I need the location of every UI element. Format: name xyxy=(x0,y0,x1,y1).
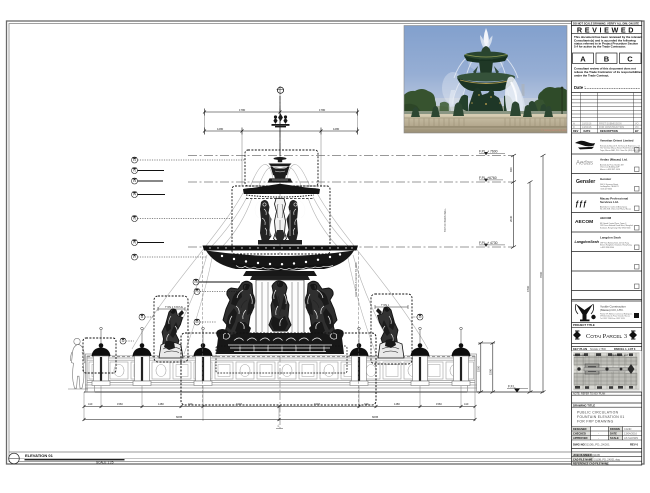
svg-text:BY: BY xyxy=(635,129,639,133)
svg-text:3110B_PD_2K001: 3110B_PD_2K001 xyxy=(585,443,610,447)
svg-text:F.F.L.: F.F.L. xyxy=(508,385,516,389)
svg-text:AECOM: AECOM xyxy=(600,216,612,220)
svg-text:5.4 for action by the Trade Co: 5.4 for action by the Trade Contractor. xyxy=(574,45,626,49)
svg-text:Kowloon, Hong Kong t 852 3922: Kowloon, Hong Kong t 852 3922 9000 xyxy=(600,226,630,229)
svg-text:Langdon Seah: Langdon Seah xyxy=(600,236,621,240)
svg-text:DRAWN: DRAWN xyxy=(610,427,620,431)
svg-text:1918: 1918 xyxy=(236,402,242,406)
svg-text:10/03/16: 10/03/16 xyxy=(582,122,592,125)
svg-text:DESCRIPTION: DESCRIPTION xyxy=(600,129,618,133)
svg-text:6095: 6095 xyxy=(176,415,183,419)
svg-text:13/04/2016: 13/04/2016 xyxy=(624,431,638,435)
svg-text:-: - xyxy=(598,432,599,435)
svg-text:KEY PLAN: KEY PLAN xyxy=(573,347,587,351)
svg-text:PUBLIC CIRCULATION: PUBLIC CIRCULATION xyxy=(577,411,619,415)
svg-text:REV 0: REV 0 xyxy=(630,443,639,447)
svg-text:FIRST SUBMISSION: FIRST SUBMISSION xyxy=(599,122,622,125)
svg-text:© www.parisinfo.com: © www.parisinfo.com xyxy=(541,128,568,132)
svg-text:F.P.L +6760: F.P.L +6760 xyxy=(479,176,497,180)
svg-text:410: 410 xyxy=(88,402,93,406)
svg-text:3110B_PD_2K001.dwg: 3110B_PD_2K001.dwg xyxy=(594,458,620,461)
svg-text:(Macau) CO, LTD.: (Macau) CO, LTD. xyxy=(600,308,624,312)
svg-text:Date :: Date : xyxy=(574,85,586,90)
svg-text:SCALE: SCALE xyxy=(610,436,619,440)
svg-text:Gensler: Gensler xyxy=(600,177,612,181)
svg-text:Aedas (Macau) Ltd.: Aedas (Macau) Ltd. xyxy=(600,158,628,162)
svg-text:B: B xyxy=(604,54,610,63)
svg-text:1280: 1280 xyxy=(333,127,340,131)
svg-text:CAD FILE NAME: CAD FILE NAME xyxy=(573,458,593,461)
svg-text:JOB NUMBER: JOB NUMBER xyxy=(573,453,592,457)
svg-text:840: 840 xyxy=(509,167,513,172)
svg-text:410: 410 xyxy=(464,402,469,406)
svg-text:1590: 1590 xyxy=(489,368,493,375)
svg-text:TYPE 1: TYPE 1 xyxy=(381,304,390,307)
svg-text:ELEVATION 01: ELEVATION 01 xyxy=(25,453,54,458)
svg-text:Gensler: Gensler xyxy=(576,179,595,185)
svg-text:APPROVED: APPROVED xyxy=(573,436,588,440)
svg-text:SITE PLAN: SITE PLAN xyxy=(573,354,585,357)
svg-text:DRAWING TITLE: DRAWING TITLE xyxy=(573,403,595,407)
svg-text:740: 740 xyxy=(188,402,193,406)
svg-text:under the Trade Contract.: under the Trade Contract. xyxy=(574,74,609,78)
svg-text:-: - xyxy=(598,437,599,440)
svg-text:1560: 1560 xyxy=(436,402,442,406)
svg-text:NOTE: REFER TO KEY PLAN: NOTE: REFER TO KEY PLAN xyxy=(573,393,606,396)
svg-text:DWG NO: DWG NO xyxy=(573,443,586,447)
svg-text:3110B: 3110B xyxy=(592,453,600,457)
svg-text:TYPE 2 STATUE: TYPE 2 STATUE xyxy=(165,306,183,309)
svg-text:VO: VO xyxy=(635,126,639,129)
svg-text:740: 740 xyxy=(364,402,369,406)
svg-text:PROJECT TITLE: PROJECT TITLE xyxy=(573,323,595,327)
svg-text:Services Ltd.: Services Ltd. xyxy=(600,200,619,204)
svg-text:Tel: 2837 2336 Fax: 2837 2676: Tel: 2837 2336 Fax: 2837 2676 xyxy=(600,318,625,320)
svg-text:Macau t +853 2871 5016: Macau t +853 2871 5016 xyxy=(600,168,620,171)
svg-text:Aedas: Aedas xyxy=(576,161,593,167)
svg-text:VO: VO xyxy=(635,122,639,125)
svg-text:ƒƒƒ: ƒƒƒ xyxy=(575,201,587,208)
svg-text:REV: REV xyxy=(573,129,579,133)
svg-text:FOR FRP DRAWING: FOR FRP DRAWING xyxy=(577,420,614,424)
svg-text:Taipa, Macau SAR, P.R. China: Taipa, Macau SAR, P.R. China Tel: (853) … xyxy=(600,149,641,152)
svg-text:No. 263, Edf. China Civil Plaz: No. 263, Edf. China Civil Plaza, Macau xyxy=(600,209,631,211)
svg-text:1780: 1780 xyxy=(239,108,246,112)
svg-text:FOR DETAILS REFER TO DWG: FOR DETAILS REFER TO DWG xyxy=(355,262,358,297)
svg-text:1780: 1780 xyxy=(319,108,326,112)
svg-text:1280: 1280 xyxy=(217,127,224,131)
svg-text:AECOM: AECOM xyxy=(575,219,593,225)
svg-text:2030: 2030 xyxy=(509,215,513,222)
svg-text:COTAI PARCEL 3: COTAI PARCEL 3 xyxy=(586,333,627,340)
svg-text:13/04/16: 13/04/16 xyxy=(582,126,592,129)
svg-text:Venetian Orient Limited: Venetian Orient Limited xyxy=(600,139,634,143)
svg-text:1480: 1480 xyxy=(394,402,400,406)
svg-text:6760: 6760 xyxy=(526,285,530,292)
svg-text:C: C xyxy=(627,54,633,63)
svg-text:t 213.327.3600: t 213.327.3600 xyxy=(600,187,612,190)
svg-text:TOP OF BASIN WALL: TOP OF BASIN WALL xyxy=(444,208,447,232)
svg-text:FOUNTAIN ELEVATION 01: FOUNTAIN ELEVATION 01 xyxy=(577,415,625,419)
svg-text:F.P.L + 7600: F.P.L + 7600 xyxy=(479,150,498,154)
svg-text:F.P.L + 4730: F.P.L + 4730 xyxy=(479,241,498,245)
svg-text:6095: 6095 xyxy=(372,415,379,419)
svg-text:LangdonSeah: LangdonSeah xyxy=(575,240,600,244)
svg-text:A: A xyxy=(580,54,586,63)
svg-text:7600: 7600 xyxy=(539,271,543,278)
svg-text:1918: 1918 xyxy=(314,402,320,406)
svg-text:REVIEWED: REVIEWED xyxy=(577,25,636,34)
svg-text:DATE: DATE xyxy=(610,431,617,435)
svg-text:PARCEL 1, LOT 3: PARCEL 1, LOT 3 xyxy=(612,354,631,357)
svg-text:PARCEL 1, LOT 3: PARCEL 1, LOT 3 xyxy=(614,347,636,351)
svg-text:DESIGNED: DESIGNED xyxy=(573,427,587,431)
svg-text:t +852 2830 3500: t +852 2830 3500 xyxy=(600,246,614,249)
svg-text:REFERENCE CAD FILE NAME: REFERENCE CAD FILE NAME xyxy=(573,462,609,465)
svg-text:1500: 1500 xyxy=(477,365,481,372)
svg-text:DATE: DATE xyxy=(584,129,591,133)
svg-text:CAND: CAND xyxy=(624,427,631,431)
svg-text:ℂ: ℂ xyxy=(278,424,280,428)
svg-text:1480: 1480 xyxy=(158,402,164,406)
svg-text:1560: 1560 xyxy=(117,402,123,406)
svg-text:AS SHOWN: AS SHOWN xyxy=(624,436,638,440)
svg-text:SCALE 1:25: SCALE 1:25 xyxy=(96,461,114,465)
svg-text:CHECKED: CHECKED xyxy=(573,431,586,435)
svg-text:FOR CONSTRUCTION: FOR CONSTRUCTION xyxy=(599,126,624,129)
